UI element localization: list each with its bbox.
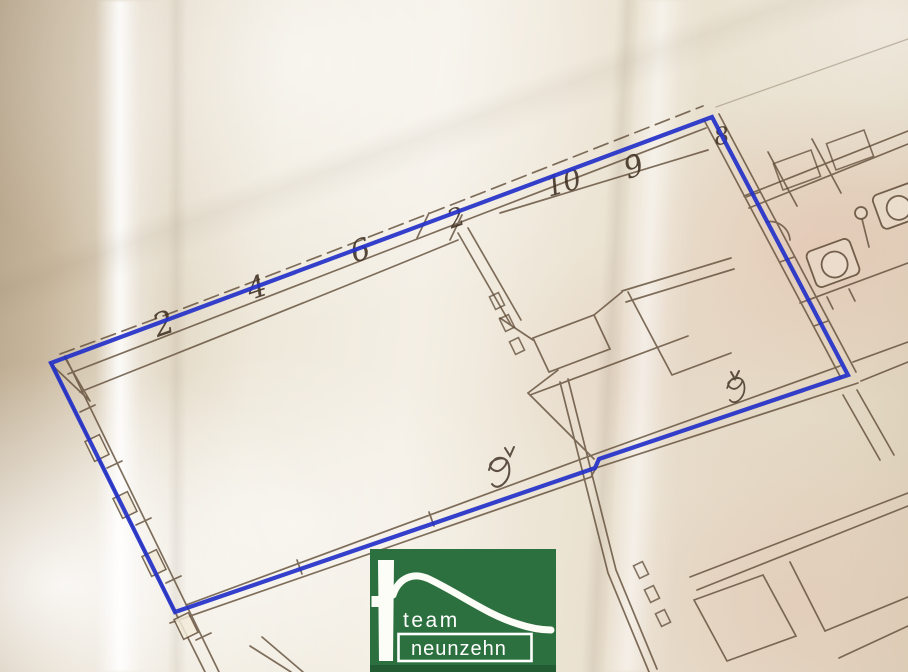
logo-border-bottom	[370, 665, 556, 672]
logo-word-neunzehn: neunzehn	[411, 638, 507, 660]
dimension-labels: 2 4 6 2 10 9 8	[147, 121, 732, 345]
handwritten-marks	[489, 371, 745, 487]
bathroom-fixtures	[805, 182, 908, 289]
unit-outline-highlight	[51, 117, 848, 612]
logo-word-team: team	[403, 609, 460, 632]
team-neunzehn-logo: team neunzehn	[370, 549, 556, 672]
floor-plan-photo: 2 4 6 2 10 9 8 team neunzehn	[0, 0, 908, 672]
logo-branch-icon	[372, 596, 380, 607]
logo-tree-trunk-icon	[378, 560, 394, 661]
dimension-label: 9	[619, 147, 648, 186]
